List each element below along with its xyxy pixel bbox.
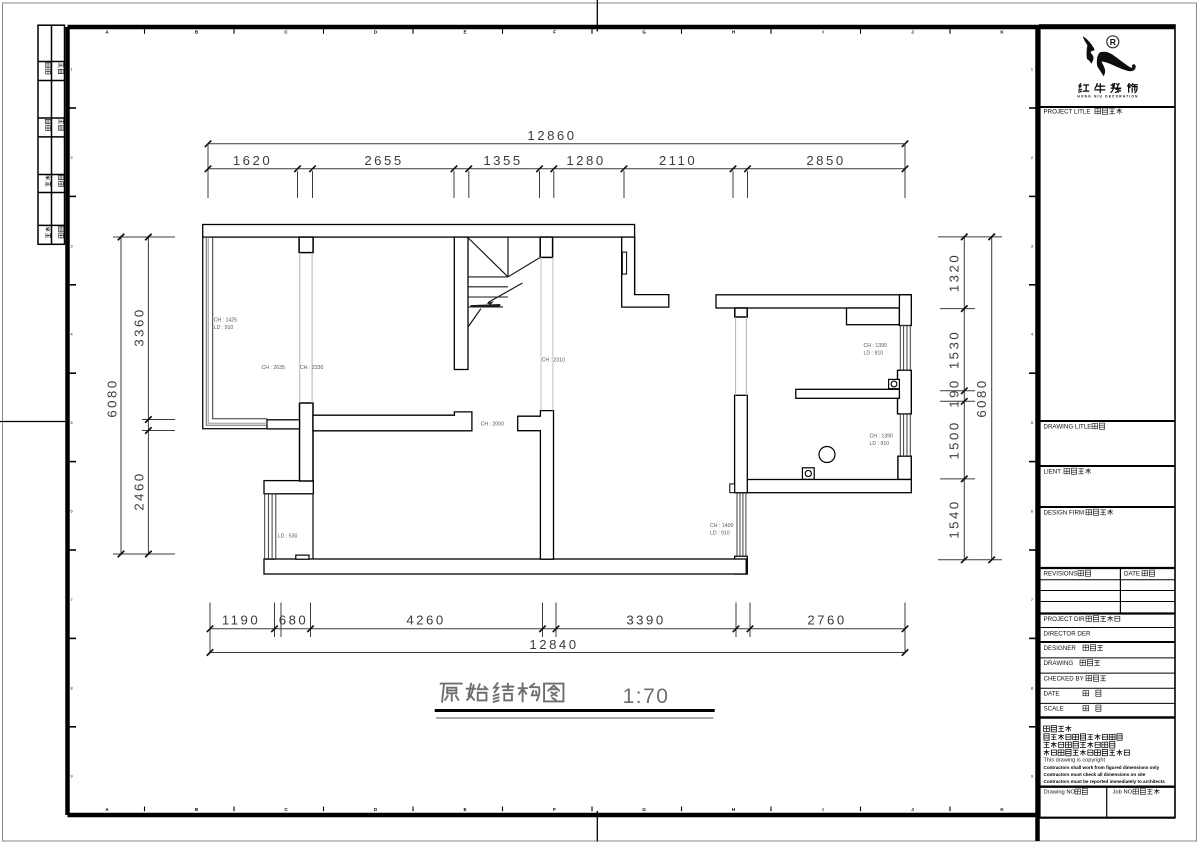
svg-text:2: 2 bbox=[71, 156, 73, 160]
svg-text:REVISIONS: REVISIONS bbox=[1044, 571, 1078, 578]
svg-text:6080: 6080 bbox=[105, 378, 120, 417]
svg-text:1: 1 bbox=[71, 68, 73, 72]
svg-text:DESIGN FIRM: DESIGN FIRM bbox=[1044, 510, 1085, 517]
svg-text:6080: 6080 bbox=[974, 378, 989, 417]
svg-text:3390: 3390 bbox=[626, 613, 665, 628]
svg-text:SCALE: SCALE bbox=[1044, 706, 1064, 713]
svg-text:9: 9 bbox=[71, 775, 73, 779]
svg-text:DATE: DATE bbox=[1044, 691, 1060, 698]
svg-text:CHECKED BY: CHECKED BY bbox=[1044, 676, 1084, 683]
svg-text:LD : 910: LD : 910 bbox=[870, 441, 890, 447]
svg-text:1190: 1190 bbox=[222, 613, 260, 628]
svg-text:4260: 4260 bbox=[406, 613, 445, 628]
svg-text:DRAWING: DRAWING bbox=[1044, 660, 1074, 667]
svg-text:12840: 12840 bbox=[529, 637, 578, 652]
svg-text:3: 3 bbox=[71, 244, 73, 248]
svg-text:4: 4 bbox=[1031, 333, 1033, 337]
svg-text:1540: 1540 bbox=[947, 499, 962, 538]
svg-text:G: G bbox=[642, 30, 646, 35]
svg-text:5: 5 bbox=[1031, 421, 1033, 425]
svg-text:LD : 530: LD : 530 bbox=[278, 534, 298, 540]
svg-text:I: I bbox=[822, 30, 823, 35]
svg-text:This drawing is copyright: This drawing is copyright bbox=[1044, 758, 1106, 764]
svg-text:7: 7 bbox=[1031, 598, 1033, 602]
svg-text:Contractors must check all dim: Contractors must check all dimensions on… bbox=[1044, 772, 1146, 777]
svg-text:9: 9 bbox=[1031, 775, 1033, 779]
svg-text:1620: 1620 bbox=[233, 153, 272, 168]
svg-text:DESIGNER: DESIGNER bbox=[1044, 645, 1077, 652]
svg-text:2850: 2850 bbox=[806, 153, 845, 168]
svg-text:LD : 910: LD : 910 bbox=[710, 531, 730, 537]
svg-text:CH : 1390: CH : 1390 bbox=[870, 434, 893, 440]
svg-text:CH : 2310: CH : 2310 bbox=[542, 358, 565, 364]
svg-text:Drawing NO: Drawing NO bbox=[1044, 790, 1076, 796]
svg-text:DIRECTOR DER: DIRECTOR DER bbox=[1044, 631, 1092, 638]
svg-text:1320: 1320 bbox=[947, 253, 962, 292]
svg-text:8: 8 bbox=[71, 686, 73, 690]
svg-text:F: F bbox=[553, 807, 556, 812]
svg-text:LD : 910: LD : 910 bbox=[214, 325, 234, 331]
svg-text:Job NO: Job NO bbox=[1113, 790, 1133, 796]
svg-text:8: 8 bbox=[1031, 686, 1033, 690]
svg-text:CH : 1400: CH : 1400 bbox=[710, 523, 733, 529]
svg-text:HONG NIU DECORATION: HONG NIU DECORATION bbox=[1077, 95, 1138, 99]
svg-text:680: 680 bbox=[279, 613, 309, 628]
svg-text:E: E bbox=[463, 807, 466, 812]
svg-text:R: R bbox=[1110, 37, 1116, 47]
svg-text:Contractors shall work from fi: Contractors shall work from figured dime… bbox=[1044, 765, 1160, 770]
svg-text:LIENT: LIENT bbox=[1044, 469, 1062, 476]
svg-text:PROJECT DIR: PROJECT DIR bbox=[1044, 616, 1086, 623]
svg-text:12860: 12860 bbox=[527, 128, 576, 143]
svg-text:4: 4 bbox=[71, 333, 73, 337]
svg-text:J: J bbox=[911, 30, 914, 35]
svg-text:2: 2 bbox=[1031, 156, 1033, 160]
svg-text:3360: 3360 bbox=[132, 307, 147, 346]
svg-text:DRAWING LITLE: DRAWING LITLE bbox=[1044, 424, 1092, 431]
svg-text:LD : 910: LD : 910 bbox=[864, 351, 884, 357]
svg-text:CH : 2000: CH : 2000 bbox=[481, 422, 504, 428]
svg-text:CH : 1425: CH : 1425 bbox=[214, 318, 237, 324]
svg-text:1:70: 1:70 bbox=[623, 685, 670, 708]
svg-text:2760: 2760 bbox=[807, 613, 846, 628]
svg-text:Contractors must be reported i: Contractors must be reported immediately… bbox=[1044, 779, 1166, 784]
svg-text:1: 1 bbox=[1031, 68, 1033, 72]
svg-text:6: 6 bbox=[71, 510, 73, 514]
svg-text:PROJECT LITLE: PROJECT LITLE bbox=[1044, 109, 1091, 116]
svg-text:E: E bbox=[463, 30, 466, 35]
svg-text:1500: 1500 bbox=[947, 420, 962, 459]
svg-text:2460: 2460 bbox=[132, 471, 147, 510]
svg-text:G: G bbox=[642, 807, 646, 812]
svg-text:CH : 2635: CH : 2635 bbox=[262, 365, 285, 371]
svg-text:I: I bbox=[822, 807, 823, 812]
svg-text:3: 3 bbox=[1031, 244, 1033, 248]
svg-text:1530: 1530 bbox=[947, 330, 962, 369]
svg-text:2655: 2655 bbox=[364, 153, 403, 168]
svg-text:F: F bbox=[553, 30, 556, 35]
svg-text:1355: 1355 bbox=[483, 153, 522, 168]
svg-text:CH : 1390: CH : 1390 bbox=[864, 343, 887, 349]
svg-text:2110: 2110 bbox=[659, 153, 697, 168]
svg-text:DATE: DATE bbox=[1124, 571, 1140, 578]
svg-text:J: J bbox=[911, 807, 914, 812]
svg-text:5: 5 bbox=[71, 421, 73, 425]
svg-text:CH : 2330: CH : 2330 bbox=[300, 365, 323, 371]
svg-text:1280: 1280 bbox=[566, 153, 605, 168]
svg-text:6: 6 bbox=[1031, 510, 1033, 514]
svg-text:190: 190 bbox=[947, 378, 962, 408]
svg-text:7: 7 bbox=[71, 598, 73, 602]
